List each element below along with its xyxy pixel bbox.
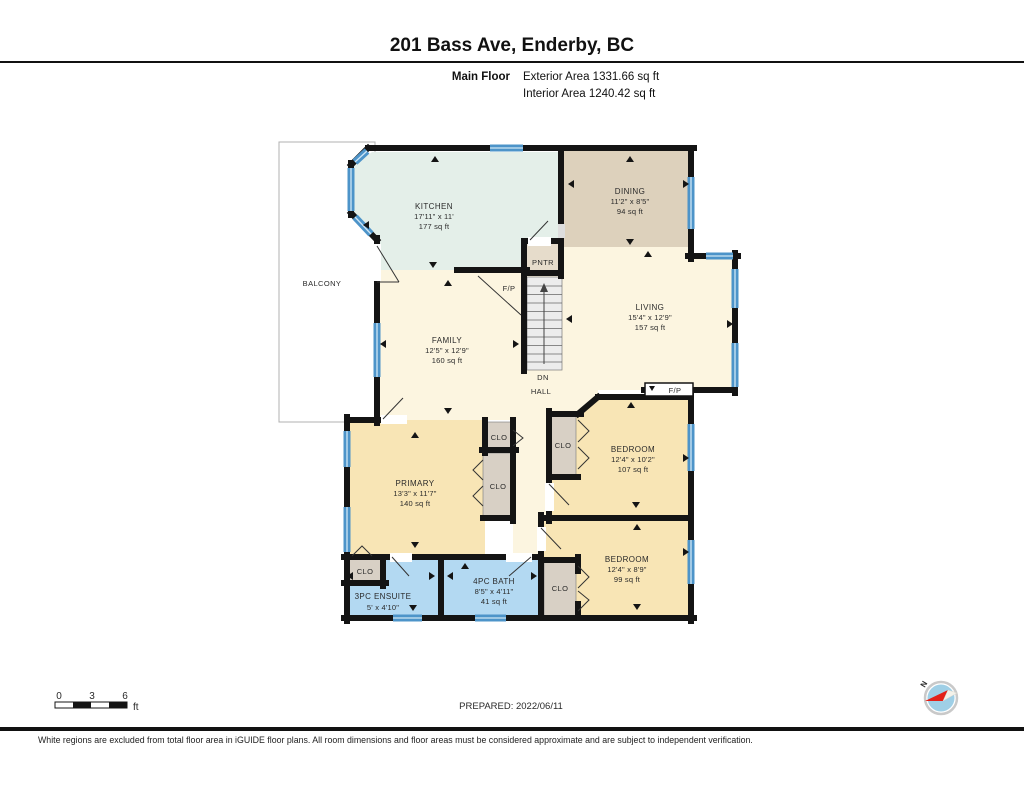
staircase [527, 277, 562, 370]
closet-label-5: CLO [552, 584, 569, 593]
living-area: 157 sq ft [635, 323, 666, 332]
floor-plan-page: 201 Bass Ave, Enderby, BC Main Floor Ext… [0, 0, 1024, 791]
living-dims: 15'4" x 12'9" [628, 313, 672, 322]
bedroom2-dims: 12'4" x 8'9" [607, 565, 646, 574]
stairs-dn-label: DN [537, 373, 549, 382]
ensuite-label: 3PC ENSUITE [355, 592, 412, 601]
bedroom1-label: BEDROOM [611, 445, 655, 454]
scale-bar: 0 3 6 ft [55, 691, 139, 713]
ensuite-dims: 5' x 4'10" [367, 603, 399, 612]
compass: N [919, 679, 957, 714]
closet-label-2: CLO [490, 482, 507, 491]
kitchen-label: KITCHEN [415, 202, 453, 211]
kitchen-area: 177 sq ft [419, 222, 450, 231]
living-label: LIVING [636, 303, 665, 312]
scale-unit: ft [133, 702, 139, 713]
closet-label-3: CLO [555, 441, 572, 450]
bedroom2-label: BEDROOM [605, 555, 649, 564]
footer-divider [0, 727, 1024, 731]
family-dims: 12'5" x 12'9" [425, 346, 469, 355]
balcony-label: BALCONY [303, 279, 342, 288]
fireplace-label-2: F/P [669, 386, 682, 395]
closet-label-4: CLO [357, 567, 374, 576]
dining-label: DINING [615, 187, 645, 196]
dining-area: 94 sq ft [617, 207, 644, 216]
scale-0: 0 [56, 691, 62, 702]
floor-plan-drawing: KITCHEN 17'11" x 11' 177 sq ft DINING 11… [0, 0, 1024, 791]
bath-label: 4PC BATH [473, 577, 515, 586]
bedroom1-dims: 12'4" x 10'2" [611, 455, 655, 464]
kitchen-dims: 17'11" x 11' [414, 212, 454, 221]
bedroom2-area: 99 sq ft [614, 575, 641, 584]
pantry-label: PNTR [532, 258, 554, 267]
scale-3: 3 [89, 691, 95, 702]
primary-label: PRIMARY [395, 479, 434, 488]
hall-label: HALL [531, 387, 551, 396]
fireplace-label-1: F/P [503, 284, 516, 293]
dining-dims: 11'2" x 8'5" [611, 197, 650, 206]
bath-area: 41 sq ft [481, 597, 508, 606]
bedroom1-area: 107 sq ft [618, 465, 649, 474]
prepared-date: PREPARED: 2022/06/11 [459, 701, 563, 712]
primary-dims: 13'3" x 11'7" [393, 489, 436, 498]
family-label: FAMILY [432, 336, 463, 345]
family-area: 160 sq ft [432, 356, 463, 365]
footer-disclaimer: White regions are excluded from total fl… [38, 735, 998, 745]
closet-label-1: CLO [491, 433, 508, 442]
primary-area: 140 sq ft [400, 499, 431, 508]
bath-dims: 8'5" x 4'11" [475, 587, 514, 596]
scale-6: 6 [122, 691, 128, 702]
